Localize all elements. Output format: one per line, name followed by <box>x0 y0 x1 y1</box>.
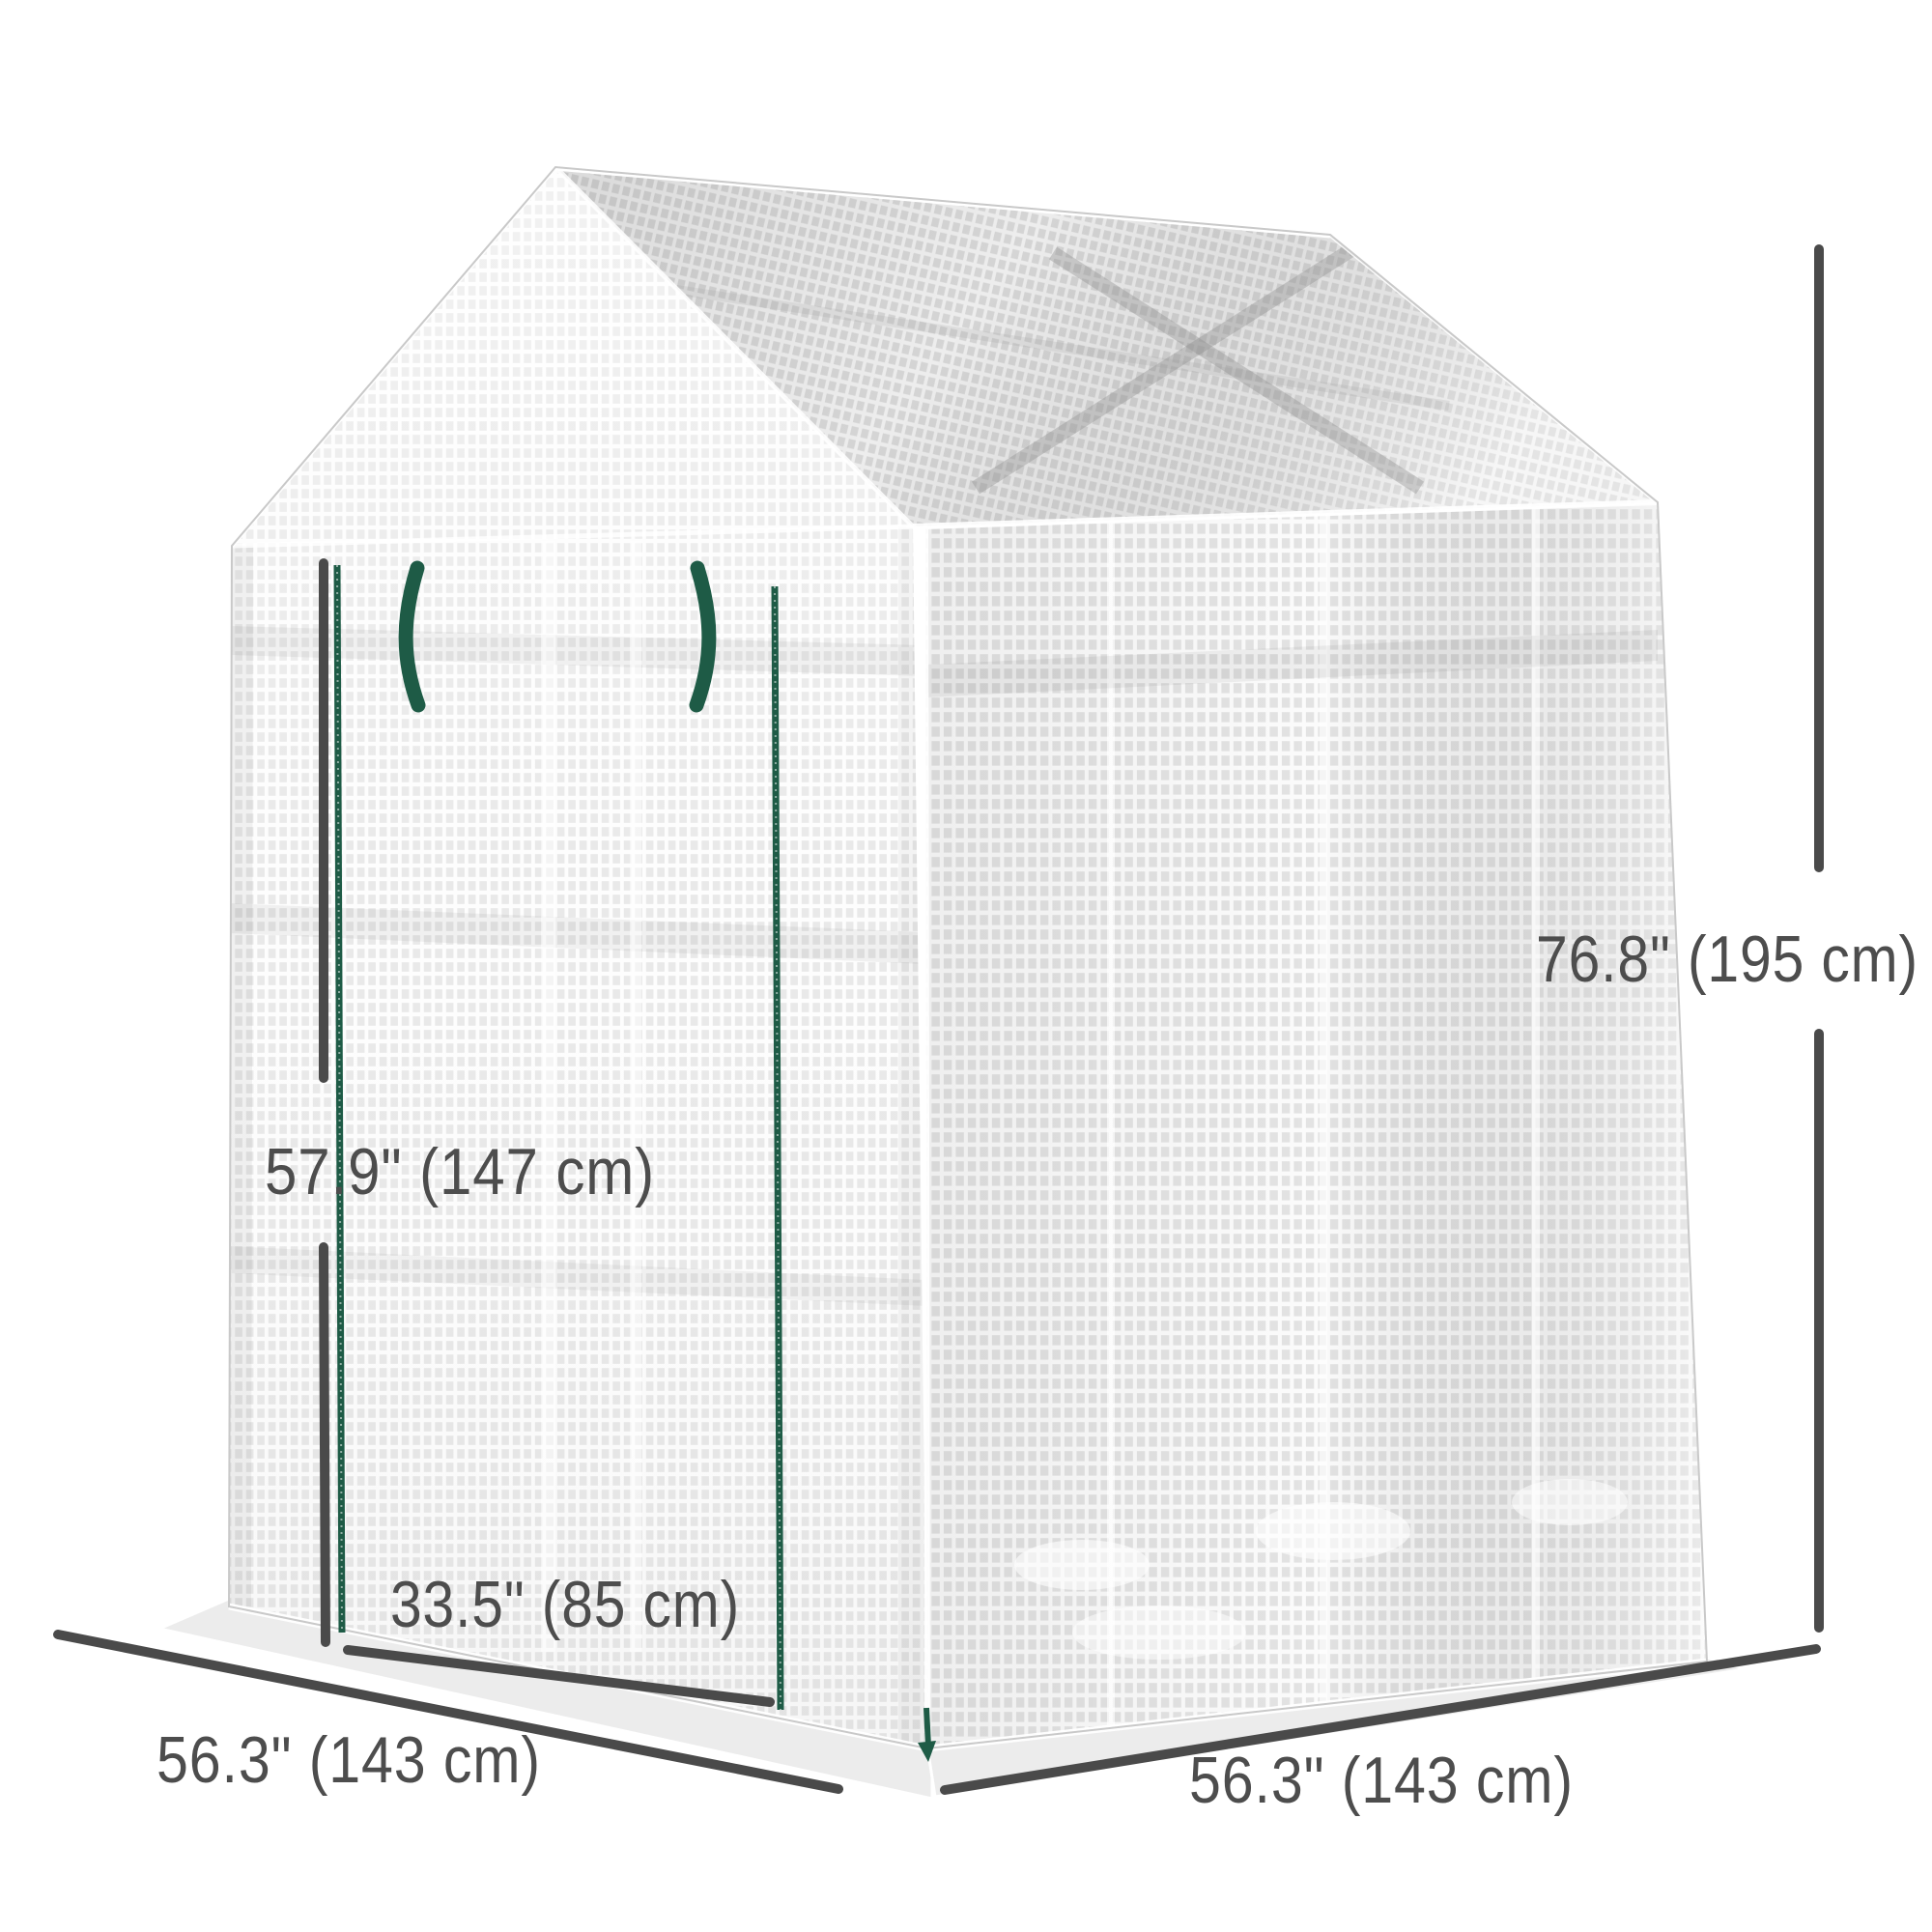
dimension-label-base-depth: 56.3" (143 cm) <box>156 1723 541 1797</box>
inner-shelf-glimpse <box>1072 1605 1246 1660</box>
inner-shelf-glimpse <box>1014 1540 1150 1590</box>
greenhouse-side-panel <box>925 504 1707 1748</box>
dimension-label-total-height: 76.8" (195 cm) <box>1536 923 1918 996</box>
greenhouse <box>229 167 1707 1762</box>
front-frame-pole <box>630 541 641 1652</box>
dimension-label-base-width: 56.3" (143 cm) <box>1189 1744 1574 1817</box>
front-frame-pole <box>541 541 555 1652</box>
inner-shelf-glimpse <box>1256 1502 1410 1560</box>
dimension-label-door-width: 33.5" (85 cm) <box>390 1568 740 1641</box>
front-corner-seam <box>925 529 927 1748</box>
front-left-edge-shadow <box>229 546 253 1606</box>
greenhouse-dimension-diagram: 57.9" (147 cm) 76.8" (195 cm) 33.5" (85 … <box>0 0 1932 1932</box>
inner-shelf-glimpse <box>1512 1479 1628 1525</box>
corner-zipper-pull <box>926 1708 928 1747</box>
dimension-label-door-height: 57.9" (147 cm) <box>265 1135 655 1208</box>
